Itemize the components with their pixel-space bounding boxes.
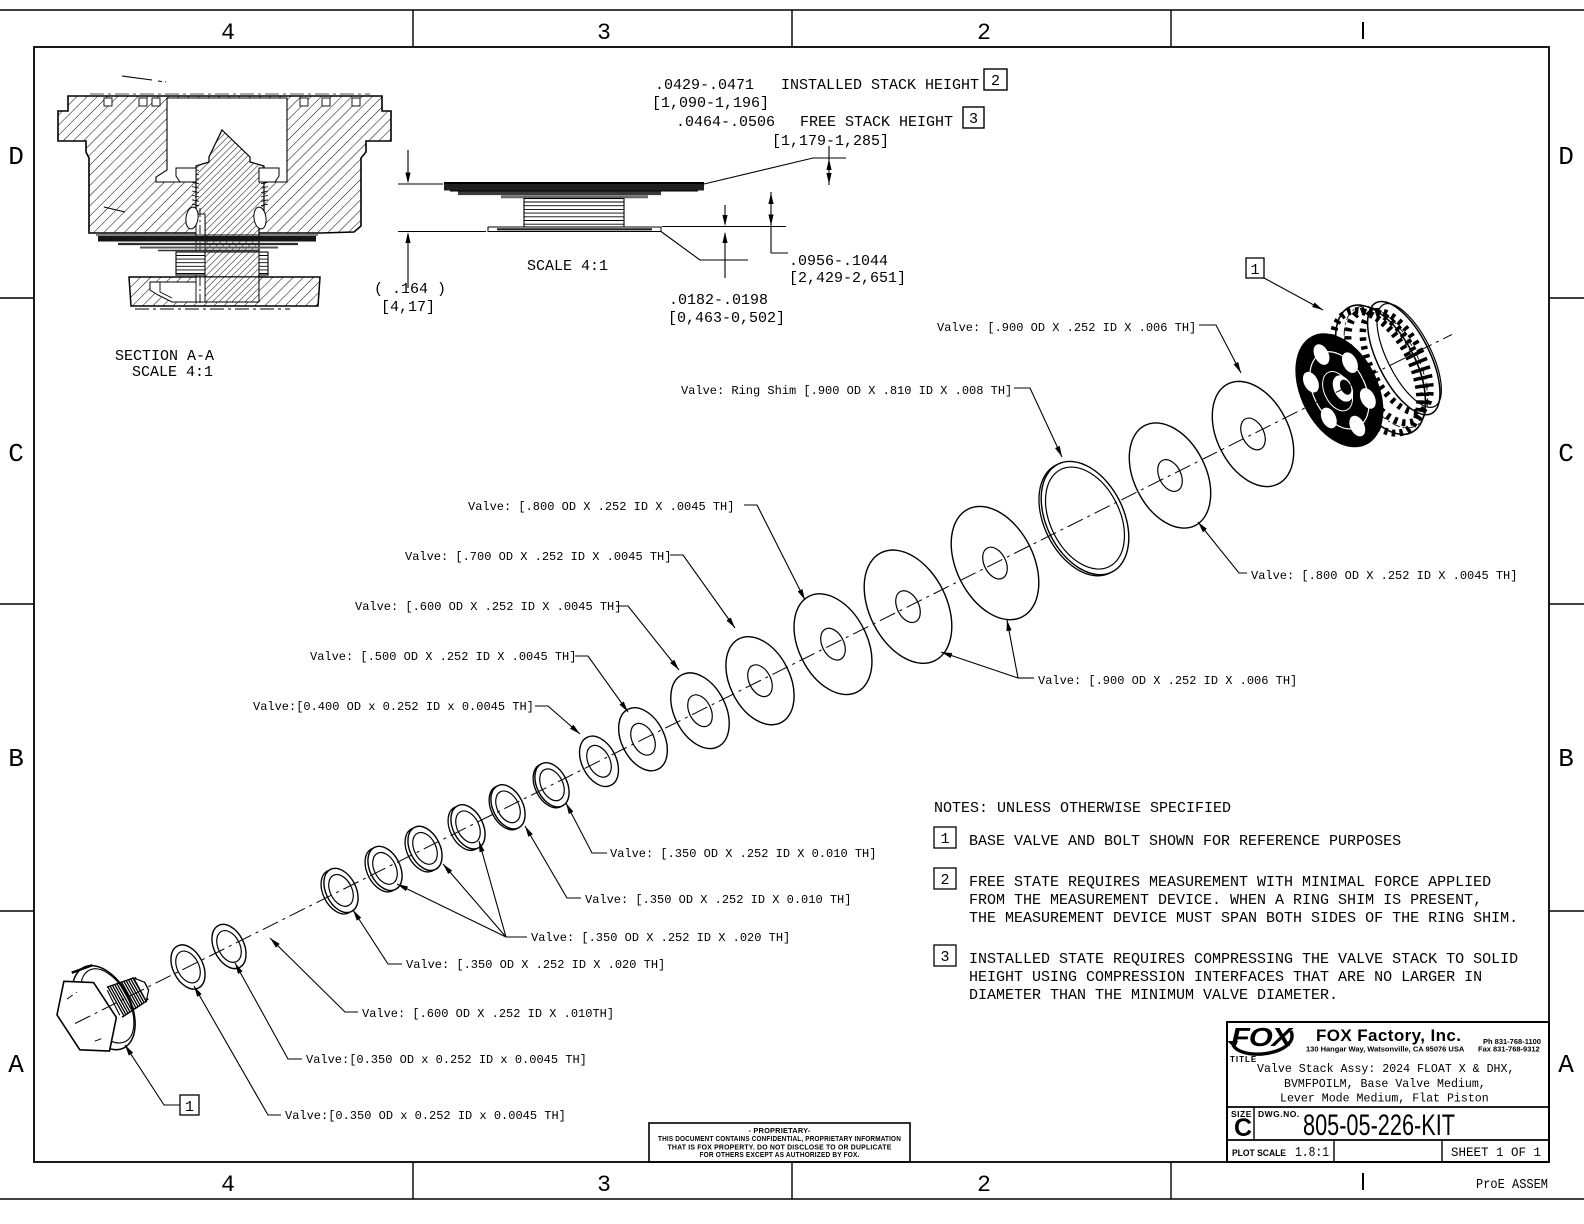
- svg-text:ProE ASSEM: ProE ASSEM: [1476, 1177, 1548, 1193]
- svg-text:.0429-.0471: .0429-.0471: [655, 77, 754, 94]
- svg-text:FREE STATE REQUIRES MEASUREMEN: FREE STATE REQUIRES MEASUREMENT WITH MIN…: [969, 874, 1491, 891]
- svg-text:Valve: [.350 OD X .252 ID X .0: Valve: [.350 OD X .252 ID X .020 TH]: [406, 958, 665, 972]
- svg-text:Valve: [.350 OD X .252 ID X 0.: Valve: [.350 OD X .252 ID X 0.010 TH]: [585, 893, 851, 907]
- svg-text:C: C: [1558, 439, 1574, 469]
- svg-text:INSTALLED STATE REQUIRES COMPR: INSTALLED STATE REQUIRES COMPRESSING THE…: [969, 951, 1518, 968]
- svg-text:Valve: Ring Shim [.900 OD X .8: Valve: Ring Shim [.900 OD X .810 ID X .0…: [681, 384, 1012, 398]
- svg-text:805-05-226-KIT: 805-05-226-KIT: [1303, 1109, 1455, 1142]
- svg-text:Valve Stack Assy: 2024 FLOAT X: Valve Stack Assy: 2024 FLOAT X & DHX,: [1257, 1063, 1514, 1076]
- svg-text:[0,463-0,502]: [0,463-0,502]: [668, 310, 785, 327]
- svg-text:THE MEASUREMENT DEVICE MUST SP: THE MEASUREMENT DEVICE MUST SPAN BOTH SI…: [969, 910, 1518, 927]
- svg-text:TITLE: TITLE: [1230, 1055, 1257, 1064]
- svg-text:C: C: [8, 439, 24, 469]
- svg-text:3: 3: [597, 1172, 611, 1198]
- svg-text:Valve: [.350 OD X .252 ID X .0: Valve: [.350 OD X .252 ID X .020 TH]: [531, 931, 790, 945]
- svg-text:4: 4: [221, 1172, 235, 1198]
- svg-text:DWG.NO.: DWG.NO.: [1258, 1109, 1300, 1119]
- svg-text:3: 3: [597, 20, 611, 46]
- svg-text:HEIGHT USING COMPRESSION INTER: HEIGHT USING COMPRESSION INTERFACES THAT…: [969, 969, 1482, 986]
- svg-text:[4,17]: [4,17]: [381, 299, 435, 316]
- svg-text:1: 1: [185, 1099, 194, 1116]
- svg-text:2: 2: [977, 20, 991, 46]
- svg-text:1: 1: [940, 831, 949, 848]
- svg-text:A: A: [8, 1050, 24, 1080]
- svg-text:BASE VALVE AND BOLT SHOWN FOR: BASE VALVE AND BOLT SHOWN FOR REFERENCE …: [969, 833, 1401, 850]
- svg-text:Valve:[0.350 OD x 0.252 ID x 0: Valve:[0.350 OD x 0.252 ID x 0.0045 TH]: [306, 1053, 587, 1067]
- svg-text:130 Hangar Way, Watsonville, C: 130 Hangar Way, Watsonville, CA 95076 US…: [1306, 1045, 1465, 1054]
- svg-text:BVMFPOILM, Base Valve Medium,: BVMFPOILM, Base Valve Medium,: [1284, 1078, 1486, 1091]
- svg-text:3: 3: [940, 949, 949, 966]
- svg-text:D: D: [8, 142, 24, 172]
- svg-text:FREE STACK HEIGHT: FREE STACK HEIGHT: [800, 114, 953, 131]
- svg-text:[1,090-1,196]: [1,090-1,196]: [652, 95, 769, 112]
- svg-text:B: B: [1558, 744, 1574, 774]
- svg-text:.0182-.0198: .0182-.0198: [669, 292, 768, 309]
- svg-text:Valve:[0.350 OD x 0.252 ID x 0: Valve:[0.350 OD x 0.252 ID x 0.0045 TH]: [285, 1109, 566, 1123]
- svg-text:C: C: [1234, 1114, 1252, 1142]
- svg-text:4: 4: [221, 20, 235, 46]
- svg-text:INSTALLED STACK HEIGHT: INSTALLED STACK HEIGHT: [781, 77, 979, 94]
- svg-text:Valve: [.350 OD X .252 ID X 0.: Valve: [.350 OD X .252 ID X 0.010 TH]: [610, 847, 876, 861]
- svg-text:Fax 831-768-9312: Fax 831-768-9312: [1478, 1045, 1540, 1054]
- svg-text:Lever Mode Medium, Flat Piston: Lever Mode Medium, Flat Piston: [1280, 1093, 1489, 1106]
- svg-text:2: 2: [991, 73, 1000, 90]
- svg-text:NOTES: UNLESS OTHERWISE SPECIF: NOTES: UNLESS OTHERWISE SPECIFIED: [934, 800, 1231, 817]
- svg-text:Valve: [.700 OD X .252 ID X .0: Valve: [.700 OD X .252 ID X .0045 TH]: [405, 550, 671, 564]
- svg-text:SECTION A-A: SECTION A-A: [115, 348, 214, 365]
- svg-text:.0464-.0506: .0464-.0506: [676, 114, 775, 131]
- svg-text:2: 2: [940, 872, 949, 889]
- svg-text:1.8:1: 1.8:1: [1295, 1145, 1329, 1161]
- svg-text:2: 2: [977, 1172, 991, 1198]
- svg-text:Valve: [.600 OD X .252 ID X .0: Valve: [.600 OD X .252 ID X .0045 TH]: [355, 600, 621, 614]
- svg-text:.0956-.1044: .0956-.1044: [789, 253, 888, 270]
- svg-text:Valve:[0.400 OD x 0.252 ID x 0: Valve:[0.400 OD x 0.252 ID x 0.0045 TH]: [253, 700, 534, 714]
- svg-text:SHEET 1 OF 1: SHEET 1 OF 1: [1451, 1146, 1541, 1160]
- svg-text:PLOT SCALE: PLOT SCALE: [1232, 1148, 1286, 1159]
- svg-text:( .164 ): ( .164 ): [374, 281, 446, 298]
- svg-text:Valve: [.800 OD X .252 ID X .0: Valve: [.800 OD X .252 ID X .0045 TH]: [468, 500, 734, 514]
- svg-text:FOX Factory, Inc.: FOX Factory, Inc.: [1316, 1026, 1461, 1045]
- svg-text:Valve: [.600 OD X .252 ID X .0: Valve: [.600 OD X .252 ID X .010TH]: [362, 1007, 614, 1021]
- svg-text:FOR OTHERS EXCEPT AS AUTHORIZE: FOR OTHERS EXCEPT AS AUTHORIZED BY FOX.: [700, 1150, 860, 1159]
- svg-text:1: 1: [1250, 262, 1259, 279]
- svg-text:Valve: [.900 OD X .252 ID X .0: Valve: [.900 OD X .252 ID X .006 TH]: [937, 321, 1196, 335]
- svg-text:SCALE 4:1: SCALE 4:1: [132, 364, 213, 381]
- svg-text:SCALE 4:1: SCALE 4:1: [527, 258, 608, 275]
- svg-text:A: A: [1558, 1050, 1574, 1080]
- svg-text:B: B: [8, 744, 24, 774]
- svg-text:3: 3: [969, 111, 978, 128]
- svg-text:Valve: [.800 OD X .252 ID X .0: Valve: [.800 OD X .252 ID X .0045 TH]: [1251, 569, 1517, 583]
- svg-text:D: D: [1558, 142, 1574, 172]
- svg-text:Valve: [.900 OD X .252 ID X .0: Valve: [.900 OD X .252 ID X .006 TH]: [1038, 674, 1297, 688]
- svg-text:[2,429-2,651]: [2,429-2,651]: [789, 270, 906, 287]
- svg-text:DIAMETER THAN THE MINIMUM VALV: DIAMETER THAN THE MINIMUM VALVE DIAMETER…: [969, 987, 1338, 1004]
- svg-text:FROM THE MEASUREMENT DEVICE. W: FROM THE MEASUREMENT DEVICE. WHEN A RING…: [969, 892, 1482, 909]
- svg-text:Valve: [.500 OD X .252 ID X .0: Valve: [.500 OD X .252 ID X .0045 TH]: [310, 650, 576, 664]
- svg-text:[1,179-1,285]: [1,179-1,285]: [772, 133, 889, 150]
